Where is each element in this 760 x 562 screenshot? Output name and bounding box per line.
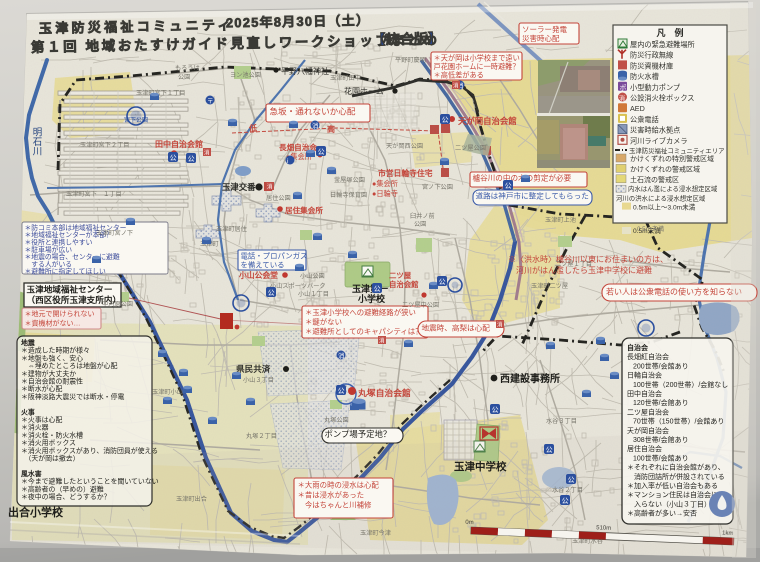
svg-text:消: 消 xyxy=(619,95,625,103)
svg-text:＊資機材がない…: ＊資機材がない… xyxy=(25,318,81,327)
svg-text:地震時、高梨は心配: 地震時、高梨は心配 xyxy=(422,323,491,333)
svg-text:県民共済: 県民共済 xyxy=(236,363,271,374)
svg-text:玉津町居住: 玉津町居住 xyxy=(216,225,247,233)
svg-text:＊高低差がある: ＊高低差がある xyxy=(434,70,484,79)
svg-text:＊避難所としてのキャパシティは？: ＊避難所としてのキャパシティは？ xyxy=(305,327,423,336)
svg-text:災害時心配: 災害時心配 xyxy=(522,33,560,43)
svg-text:＊役所と連携しやすい: ＊役所と連携しやすい xyxy=(25,238,93,247)
svg-text:＊加入率が低い自治会もある: ＊加入率が低い自治会もある xyxy=(627,481,718,490)
svg-text:＊断水が心配: ＊断水が心配 xyxy=(21,384,62,393)
svg-text:河川ライブカメラ: 河川ライブカメラ xyxy=(630,136,688,145)
svg-text:＊夜中の場合、どうするか？: ＊夜中の場合、どうするか？ xyxy=(21,492,111,501)
svg-text:公: 公 xyxy=(170,154,177,162)
svg-text:小山３丁目: 小山３丁目 xyxy=(243,376,274,384)
svg-text:災害時給水拠点: 災害時給水拠点 xyxy=(630,126,680,135)
svg-text:＊建物が大丈夫か: ＊建物が大丈夫か xyxy=(21,369,76,378)
svg-text:玉津町田中: 玉津町田中 xyxy=(330,74,361,82)
svg-text:明石川: 明石川 xyxy=(31,127,43,156)
svg-text:公: 公 xyxy=(188,155,195,163)
svg-text:自治会館: 自治会館 xyxy=(389,280,419,289)
svg-text:＊消火栓・防火水槽: ＊消火栓・防火水槽 xyxy=(21,430,83,439)
svg-text:消: 消 xyxy=(267,183,273,191)
svg-text:＊高齢者が多い→安否: ＊高齢者が多い→安否 xyxy=(627,509,697,518)
svg-text:する人がいる: する人がいる xyxy=(25,259,73,268)
svg-text:丸塚２丁目: 丸塚２丁目 xyxy=(246,432,277,440)
svg-text:居住自治会: 居住自治会 xyxy=(627,444,662,453)
svg-text:玉津中学校: 玉津中学校 xyxy=(454,460,507,473)
svg-text:0.5m以上～3.0m未満: 0.5m以上～3.0m未満 xyxy=(633,203,696,212)
svg-text:公: 公 xyxy=(338,387,345,395)
svg-text:玉津町宮下２丁目: 玉津町宮下２丁目 xyxy=(80,141,130,149)
svg-text:100世帯/会館あり: 100世帯/会館あり xyxy=(633,453,689,462)
svg-text:公設消火栓ボックス: 公設消火栓ボックス xyxy=(630,94,694,103)
svg-text:日輪自治会: 日輪自治会 xyxy=(627,371,662,380)
svg-text:120世帯/会館あり: 120世帯/会館あり xyxy=(633,398,689,407)
svg-text:＊地震の場合、センターに避難: ＊地震の場合、センターに避難 xyxy=(25,252,120,261)
svg-text:長畑紅自治会: 長畑紅自治会 xyxy=(627,352,669,361)
svg-text:＊駐車場が広い: ＊駐車場が広い xyxy=(25,245,73,254)
svg-text:公: 公 xyxy=(439,278,446,286)
svg-text:地震: 地震 xyxy=(21,338,35,347)
svg-text:＊造成した時期が様々: ＊造成した時期が様々 xyxy=(21,346,90,355)
svg-text:玉津町宮下１丁目: 玉津町宮下１丁目 xyxy=(136,89,186,97)
svg-text:〒: 〒 xyxy=(207,98,214,105)
svg-text:中河原公園: 中河原公園 xyxy=(102,300,133,308)
svg-text:日輪寺保育園: 日輪寺保育園 xyxy=(330,191,367,199)
svg-text:玉津町宮下 １丁目: 玉津町宮下 １丁目 xyxy=(66,190,122,198)
svg-text:防火水槽: 防火水槽 xyxy=(630,72,659,81)
svg-text:玉津防災福祉コミュニティエリア: 玉津防災福祉コミュニティエリア xyxy=(629,146,724,155)
svg-text:ポンプ場予定地？: ポンプ場予定地？ xyxy=(325,429,392,439)
svg-text:玉津地域福祉センター: 玉津地域福祉センター xyxy=(27,283,113,294)
svg-text:消: 消 xyxy=(204,149,210,157)
svg-text:天が岡西公園: 天が岡西公園 xyxy=(386,142,423,150)
svg-text:●集会所: ●集会所 xyxy=(372,179,398,188)
svg-text:公: 公 xyxy=(268,289,275,297)
svg-text:低: 低 xyxy=(248,123,257,133)
svg-text:200世帯/会館あり: 200世帯/会館あり xyxy=(633,361,689,370)
svg-text:高: 高 xyxy=(327,124,335,134)
svg-text:＊阪神淡路大震災では断水・停電: ＊阪神淡路大震災では断水・停電 xyxy=(21,392,124,401)
svg-text:ポ: ポ xyxy=(620,84,627,92)
svg-text:田中自治会: 田中自治会 xyxy=(627,389,662,398)
svg-text:0.5ｍ未満: 0.5ｍ未満 xyxy=(637,225,664,233)
svg-text:消: 消 xyxy=(312,121,319,130)
svg-text:平野八幡神社: 平野八幡神社 xyxy=(281,66,329,76)
svg-text:小山１丁目: 小山１丁目 xyxy=(298,290,329,298)
svg-text:花園ホーム: 花園ホーム xyxy=(344,86,384,96)
svg-text:＊それぞれに自治会館があり、: ＊それぞれに自治会館があり、 xyxy=(627,463,725,472)
svg-text:＊自治会館の耐震性: ＊自治会館の耐震性 xyxy=(21,377,83,386)
svg-text:かけくずれの特別警戒区域: かけくずれの特別警戒区域 xyxy=(630,154,714,163)
svg-text:出合小学校: 出合小学校 xyxy=(8,505,64,519)
svg-text:電話・プロパンガス: 電話・プロパンガス xyxy=(241,251,308,260)
svg-text:＊地元で開けられない: ＊地元で開けられない xyxy=(25,309,95,318)
svg-text:今はちゃんと川補修: 今はちゃんと川補修 xyxy=(298,500,373,509)
svg-text:公: 公 xyxy=(442,116,449,124)
svg-text:公: 公 xyxy=(492,406,499,414)
svg-text:消: 消 xyxy=(338,351,345,360)
svg-text:小山公園: 小山公園 xyxy=(300,272,325,280)
svg-text:308世帯/会館あり: 308世帯/会館あり xyxy=(633,435,689,444)
svg-text:（天が岡は撤去）: （天が岡は撤去） xyxy=(21,454,80,463)
svg-text:入らない（小山３丁目）: 入らない（小山３丁目） xyxy=(627,499,711,508)
svg-text:内水はん濫による浸水想定区域: 内水はん濫による浸水想定区域 xyxy=(628,184,718,193)
svg-text:＊今まで避難したということを聞いていない: ＊今まで避難したということを聞いていない xyxy=(21,477,159,486)
svg-text:居住公園: 居住公園 xyxy=(266,194,291,202)
svg-text:玉津町出合: 玉津町出合 xyxy=(176,495,207,503)
svg-text:水谷２丁目: 水谷２丁目 xyxy=(552,486,583,494)
svg-text:丸塚公園: 丸塚公園 xyxy=(324,416,349,424)
svg-text:丸塚自治会館: 丸塚自治会館 xyxy=(357,387,411,398)
svg-text:天が岡自治会: 天が岡自治会 xyxy=(627,426,669,435)
svg-text:玉津第一: 玉津第一 xyxy=(352,283,388,294)
svg-text:100世帯（200世帯）/会館なし: 100世帯（200世帯）/会館なし xyxy=(633,380,728,389)
svg-text:公: 公 xyxy=(562,497,569,505)
svg-text:田中自治会館: 田中自治会館 xyxy=(155,139,203,149)
svg-text:公: 公 xyxy=(505,182,512,190)
svg-text:公: 公 xyxy=(374,285,381,293)
svg-text:小型動力ポンプ: 小型動力ポンプ xyxy=(630,83,681,92)
svg-text:玉津町小山: 玉津町小山 xyxy=(152,388,183,396)
svg-text:＊地盤も強く、安心: ＊地盤も強く、安心 xyxy=(21,353,83,362)
svg-text:二ツ屋公園: 二ツ屋公園 xyxy=(455,145,486,152)
svg-text:小山公会堂: 小山公会堂 xyxy=(238,270,278,280)
svg-text:公: 公 xyxy=(568,476,575,484)
svg-text:若い人は公衆電話の使い方を知らない: 若い人は公衆電話の使い方を知らない xyxy=(606,286,742,296)
svg-text:AED: AED xyxy=(630,104,645,113)
svg-text:＊消火用ボックスがあり、消防団員が使える: ＊消火用ボックスがあり、消防団員が使える xyxy=(21,446,158,455)
svg-text:自治会: 自治会 xyxy=(627,343,649,352)
svg-text:二ツ屋: 二ツ屋 xyxy=(389,271,412,280)
svg-text:宮ノ下公園: 宮ノ下公園 xyxy=(422,183,453,191)
svg-text:もろうけ: もろうけ xyxy=(175,65,200,72)
svg-text:70世帯（150世帯）/会館あり: 70世帯（150世帯）/会館あり xyxy=(633,417,724,426)
svg-text:＊火事は心配: ＊火事は心配 xyxy=(21,415,62,424)
svg-text:かけくずれの警戒区域: かけくずれの警戒区域 xyxy=(630,164,700,173)
svg-text:玉津町二ツ屋: 玉津町二ツ屋 xyxy=(531,282,568,290)
svg-text:を備えている: を備えている xyxy=(241,260,285,269)
svg-text:公衆電話: 公衆電話 xyxy=(630,115,659,124)
svg-text:0m: 0m xyxy=(465,520,474,526)
svg-text:消防団詰所が併設されている: 消防団詰所が併設されている xyxy=(627,472,725,481)
svg-text:510m: 510m xyxy=(596,525,611,532)
svg-text:玉津交番: 玉津交番 xyxy=(222,182,256,192)
svg-text:天が岡自治会館: 天が岡自治会館 xyxy=(458,116,517,126)
svg-text:屋内の緊急避難場所: 屋内の緊急避難場所 xyxy=(630,40,695,49)
svg-text:ヨン池公園: ヨン池公園 xyxy=(230,71,261,79)
svg-text:土石流の警戒区: 土石流の警戒区 xyxy=(630,175,679,184)
svg-text:居住集会所: 居住集会所 xyxy=(285,205,323,215)
svg-text:河川の洪水による浸水想定区域: 河川の洪水による浸水想定区域 xyxy=(616,193,706,202)
svg-text:●日輪寺: ●日輪寺 xyxy=(372,189,398,198)
svg-text:小学校: 小学校 xyxy=(357,293,386,304)
svg-text:道路は神戸市に整定してもらった: 道路は神戸市に整定してもらった xyxy=(476,191,589,201)
svg-text:凡 例: 凡 例 xyxy=(655,27,683,38)
svg-text:1km: 1km xyxy=(722,531,734,537)
svg-text:玉津町上池: 玉津町上池 xyxy=(545,216,576,224)
svg-text:消: 消 xyxy=(379,337,385,345)
svg-text:水谷３丁目: 水谷３丁目 xyxy=(546,417,577,425)
svg-text:消: 消 xyxy=(453,82,459,90)
svg-text:平野町慶明: 平野町慶明 xyxy=(395,56,426,64)
svg-text:ソーラー発電: ソーラー発電 xyxy=(522,25,567,34)
svg-text:小山スポーツパーク: 小山スポーツパーク xyxy=(270,282,326,290)
svg-text:消: 消 xyxy=(497,321,503,329)
svg-text:＊大雨の時の浸水は心配: ＊大雨の時の浸水は心配 xyxy=(298,480,380,489)
svg-text:i: i xyxy=(287,158,288,165)
svg-text:＊避難所に指定してほしい: ＊避難所に指定してほしい xyxy=(25,267,107,276)
svg-text:急坂・通れないか心配: 急坂・通れないか心配 xyxy=(270,105,356,116)
svg-text:＊マンション住民は自治会に: ＊マンション住民は自治会に xyxy=(627,490,718,499)
svg-text:防災行政無線: 防災行政無線 xyxy=(630,51,673,60)
svg-text:⇔埋めたところは地盤が心配: ⇔埋めたところは地盤が心配 xyxy=(21,361,118,370)
svg-text:公園: 公園 xyxy=(414,221,426,228)
svg-text:玉津町今津: 玉津町今津 xyxy=(360,529,391,537)
svg-text:公園: 公園 xyxy=(178,74,190,81)
svg-text:釜屋塚公園: 釜屋塚公園 xyxy=(334,176,365,184)
svg-text:二ツ屋自治会: 二ツ屋自治会 xyxy=(627,407,669,416)
svg-text:【統合版】: 【統合版】 xyxy=(372,30,442,47)
svg-text:＊消火器: ＊消火器 xyxy=(21,423,49,432)
svg-text:＊高齢者の（早めの）避難: ＊高齢者の（早めの）避難 xyxy=(21,484,104,493)
svg-text:宮下公園: 宮下公園 xyxy=(124,116,148,124)
svg-text:火事: 火事 xyxy=(21,407,35,416)
svg-text:西建設事務所: 西建設事務所 xyxy=(500,372,560,385)
svg-text:＊鍵がない: ＊鍵がない xyxy=(305,318,342,327)
svg-text:玉津町宮ノ下: 玉津町宮ノ下 xyxy=(96,229,133,237)
svg-text:＊玉津小学校への避難経路が狭い: ＊玉津小学校への避難経路が狭い xyxy=(305,308,416,317)
svg-text:市営日輪寺住宅: 市営日輪寺住宅 xyxy=(378,168,433,178)
svg-text:＊消火用ボックス: ＊消火用ボックス xyxy=(21,438,76,447)
svg-text:風水害: 風水害 xyxy=(21,469,42,478)
svg-text:臼井ノ前: 臼井ノ前 xyxy=(410,212,435,220)
svg-text:防災資機材庫: 防災資機材庫 xyxy=(630,61,673,70)
svg-text:二ツ屋中公園: 二ツ屋中公園 xyxy=(402,301,439,309)
svg-text:＊昔は浸水があった: ＊昔は浸水があった xyxy=(298,490,365,499)
svg-text:二ツ屋１丁目: 二ツ屋１丁目 xyxy=(555,261,592,268)
svg-text:公: 公 xyxy=(546,446,553,454)
svg-text:公: 公 xyxy=(318,148,325,156)
